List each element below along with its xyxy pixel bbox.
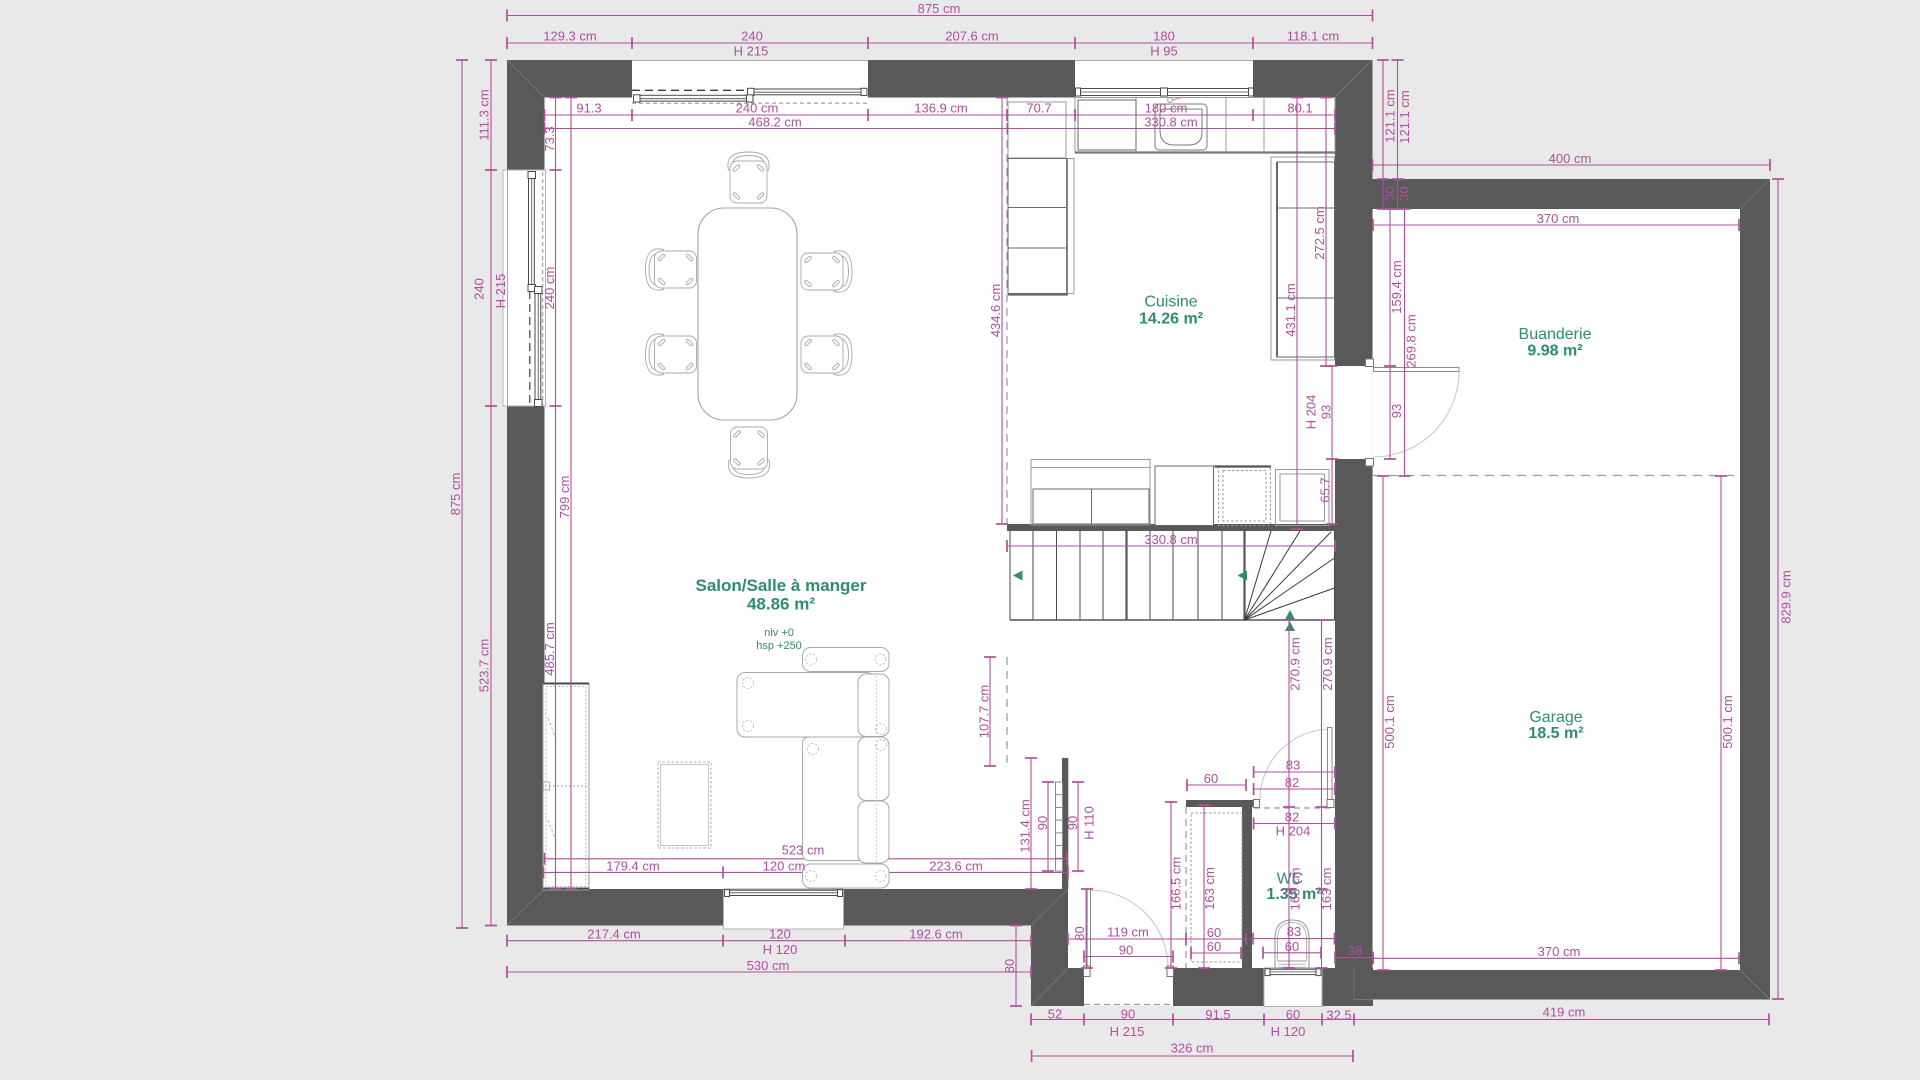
svg-text:500.1 cm: 500.1 cm — [1720, 695, 1735, 748]
svg-text:240: 240 — [741, 29, 763, 44]
svg-text:270.9 cm: 270.9 cm — [1288, 637, 1303, 690]
svg-text:30: 30 — [1397, 186, 1412, 200]
svg-text:530 cm: 530 cm — [747, 958, 790, 973]
svg-text:Salon/Salle à manger: Salon/Salle à manger — [695, 576, 866, 595]
svg-text:163 cm: 163 cm — [1202, 867, 1217, 910]
svg-text:269.8 cm: 269.8 cm — [1404, 314, 1419, 367]
svg-text:240: 240 — [472, 278, 487, 300]
svg-text:370 cm: 370 cm — [1537, 211, 1580, 226]
svg-text:118.1 cm: 118.1 cm — [1287, 29, 1340, 44]
svg-text:523.7 cm: 523.7 cm — [477, 639, 492, 692]
svg-text:hsp +250: hsp +250 — [756, 640, 802, 652]
svg-text:419 cm: 419 cm — [1543, 1005, 1586, 1020]
svg-text:Garage: Garage — [1529, 709, 1582, 726]
svg-text:121.1 cm: 121.1 cm — [1383, 89, 1398, 142]
svg-text:38: 38 — [1348, 943, 1362, 958]
svg-text:875 cm: 875 cm — [918, 1, 961, 16]
svg-text:326 cm: 326 cm — [1171, 1041, 1214, 1056]
svg-text:179.4 cm: 179.4 cm — [606, 859, 659, 874]
svg-text:91.3: 91.3 — [576, 101, 601, 116]
svg-text:82: 82 — [1285, 775, 1299, 790]
svg-text:131.4 cm: 131.4 cm — [1018, 799, 1033, 852]
svg-text:H 120: H 120 — [763, 942, 798, 957]
svg-text:90: 90 — [1119, 943, 1133, 958]
svg-text:Cuisine: Cuisine — [1144, 294, 1197, 311]
svg-text:niv +0: niv +0 — [764, 627, 794, 639]
svg-text:52: 52 — [1048, 1007, 1062, 1022]
svg-text:163 cm: 163 cm — [1319, 868, 1334, 911]
svg-text:180: 180 — [1153, 29, 1175, 44]
svg-text:30: 30 — [1383, 186, 1398, 200]
svg-text:330.8 cm: 330.8 cm — [1144, 532, 1197, 547]
svg-text:163 cm: 163 cm — [1288, 868, 1303, 911]
svg-text:60: 60 — [1286, 1007, 1300, 1022]
svg-text:330.8 cm: 330.8 cm — [1144, 115, 1197, 130]
svg-text:159.4 cm: 159.4 cm — [1389, 260, 1404, 313]
svg-text:83: 83 — [1286, 758, 1300, 773]
svg-text:90: 90 — [1035, 816, 1050, 830]
svg-text:80: 80 — [1072, 926, 1087, 940]
svg-text:60: 60 — [1285, 939, 1299, 954]
svg-text:431.1 cm: 431.1 cm — [1283, 283, 1298, 336]
svg-text:90: 90 — [1121, 1007, 1135, 1022]
svg-text:485.7 cm: 485.7 cm — [542, 622, 557, 675]
svg-text:90: 90 — [1065, 816, 1080, 830]
svg-text:48.86 m²: 48.86 m² — [747, 595, 815, 614]
svg-text:60: 60 — [1207, 925, 1221, 940]
svg-text:93: 93 — [1319, 405, 1334, 419]
svg-text:80: 80 — [1002, 959, 1017, 973]
svg-text:93: 93 — [1389, 404, 1404, 418]
svg-text:166.5 cm: 166.5 cm — [1169, 857, 1184, 910]
svg-text:180 cm: 180 cm — [1145, 101, 1188, 116]
svg-text:136.9 cm: 136.9 cm — [914, 101, 967, 116]
svg-text:82: 82 — [1285, 810, 1299, 825]
svg-text:500.1 cm: 500.1 cm — [1382, 695, 1397, 748]
svg-text:60: 60 — [1207, 939, 1221, 954]
svg-text:14.26 m²: 14.26 m² — [1139, 311, 1203, 328]
svg-text:120: 120 — [769, 927, 791, 942]
svg-text:370 cm: 370 cm — [1538, 944, 1581, 959]
svg-text:129.3 cm: 129.3 cm — [543, 29, 596, 44]
svg-text:60: 60 — [1204, 771, 1218, 786]
svg-text:119 cm: 119 cm — [1107, 925, 1149, 940]
svg-text:65.7: 65.7 — [1318, 477, 1333, 502]
svg-text:9.98 m²: 9.98 m² — [1527, 343, 1582, 360]
svg-text:32.5: 32.5 — [1326, 1008, 1351, 1023]
svg-text:H 204: H 204 — [1304, 395, 1319, 430]
svg-text:Buanderie: Buanderie — [1519, 326, 1592, 343]
svg-text:80.1: 80.1 — [1287, 101, 1312, 116]
svg-text:H 215: H 215 — [493, 274, 508, 309]
svg-text:H 120: H 120 — [1271, 1024, 1306, 1039]
svg-text:121.1 cm: 121.1 cm — [1397, 90, 1412, 143]
svg-text:H 110: H 110 — [1082, 806, 1097, 840]
svg-text:523 cm: 523 cm — [782, 843, 825, 858]
svg-text:18.5 m²: 18.5 m² — [1528, 725, 1583, 742]
svg-text:400 cm: 400 cm — [1549, 151, 1592, 166]
svg-text:H 215: H 215 — [734, 44, 769, 59]
svg-text:217.4 cm: 217.4 cm — [587, 927, 640, 942]
svg-text:270.9 cm: 270.9 cm — [1320, 637, 1335, 690]
svg-text:434.6 cm: 434.6 cm — [988, 284, 1003, 337]
svg-text:H 95: H 95 — [1150, 44, 1177, 59]
svg-text:70.7: 70.7 — [1026, 101, 1051, 116]
svg-text:829.9 cm: 829.9 cm — [1779, 570, 1794, 623]
svg-text:799 cm: 799 cm — [557, 476, 572, 519]
svg-text:73.3: 73.3 — [542, 126, 557, 151]
svg-text:240 cm: 240 cm — [542, 267, 557, 310]
svg-text:223.6 cm: 223.6 cm — [929, 859, 982, 874]
svg-text:107.7 cm: 107.7 cm — [977, 685, 992, 738]
svg-text:875 cm: 875 cm — [448, 473, 463, 516]
svg-text:120 cm: 120 cm — [763, 859, 806, 874]
svg-text:192.6 cm: 192.6 cm — [909, 927, 962, 942]
svg-text:240 cm: 240 cm — [736, 101, 779, 116]
svg-text:91.5: 91.5 — [1205, 1007, 1230, 1022]
svg-text:111.3 cm: 111.3 cm — [477, 89, 492, 141]
svg-text:468.2 cm: 468.2 cm — [748, 115, 801, 130]
svg-text:H 215: H 215 — [1110, 1024, 1145, 1039]
svg-text:272.5 cm: 272.5 cm — [1312, 206, 1327, 259]
svg-text:207.6 cm: 207.6 cm — [945, 29, 998, 44]
svg-text:H 204: H 204 — [1276, 824, 1311, 839]
